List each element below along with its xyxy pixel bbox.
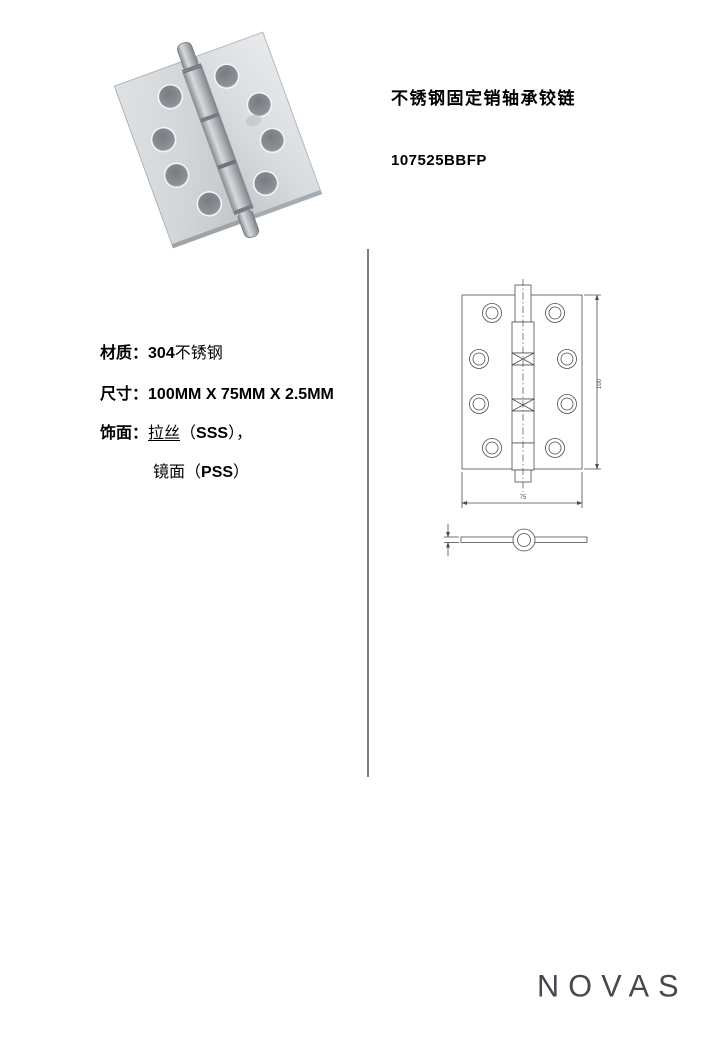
dimension-thickness	[444, 524, 459, 556]
dimension-height: 100	[584, 295, 603, 469]
hinge-side-view-drawing	[444, 524, 587, 556]
spec-size-label: 尺寸：	[100, 386, 148, 403]
spec-finish2-name: 镜面	[153, 464, 185, 481]
spec-material-label: 材质：	[100, 345, 148, 362]
spec-finish1-paren-close: ），	[228, 425, 252, 442]
spec-finish1-paren-open: （	[180, 425, 196, 442]
spec-material-value-grade: 304	[148, 345, 175, 362]
technical-drawing: 100 75	[428, 272, 620, 588]
spec-finish1-name: 拉丝	[148, 425, 180, 442]
vertical-divider	[367, 249, 369, 777]
spec-finish-label: 饰面：	[100, 425, 148, 442]
hinge-front-view-drawing: 100 75	[462, 279, 603, 508]
spec-size: 尺寸：100MM X 75MM X 2.5MM	[100, 385, 334, 405]
spec-material-value: 不锈钢	[175, 345, 223, 362]
product-photo-hinge-icon	[101, 23, 335, 257]
spec-size-value: 100MM X 75MM X 2.5MM	[148, 386, 334, 403]
spec-finish-line1: 饰面：拉丝（SSS），	[100, 424, 252, 444]
spec-finish1-code: SSS	[196, 425, 228, 442]
brand-logo: NOVAS	[537, 969, 688, 1005]
spec-finish2-code: PSS	[201, 464, 233, 481]
product-code: 107525BBFP	[391, 152, 487, 169]
spec-material: 材质：304不锈钢	[100, 344, 223, 364]
datasheet-page: 不锈钢固定销轴承铰链 107525BBFP 材质：304不锈钢 尺寸：100MM…	[0, 0, 720, 1040]
spec-finish2-paren-open: （	[185, 464, 201, 481]
page-title: 不锈钢固定销轴承铰链	[391, 84, 576, 109]
spec-finish-line2: 镜面（PSS）	[153, 463, 249, 483]
dimension-width-label: 75	[520, 495, 527, 501]
spec-finish2-paren-close: ）	[233, 464, 249, 481]
dimension-height-label: 100	[597, 378, 603, 389]
